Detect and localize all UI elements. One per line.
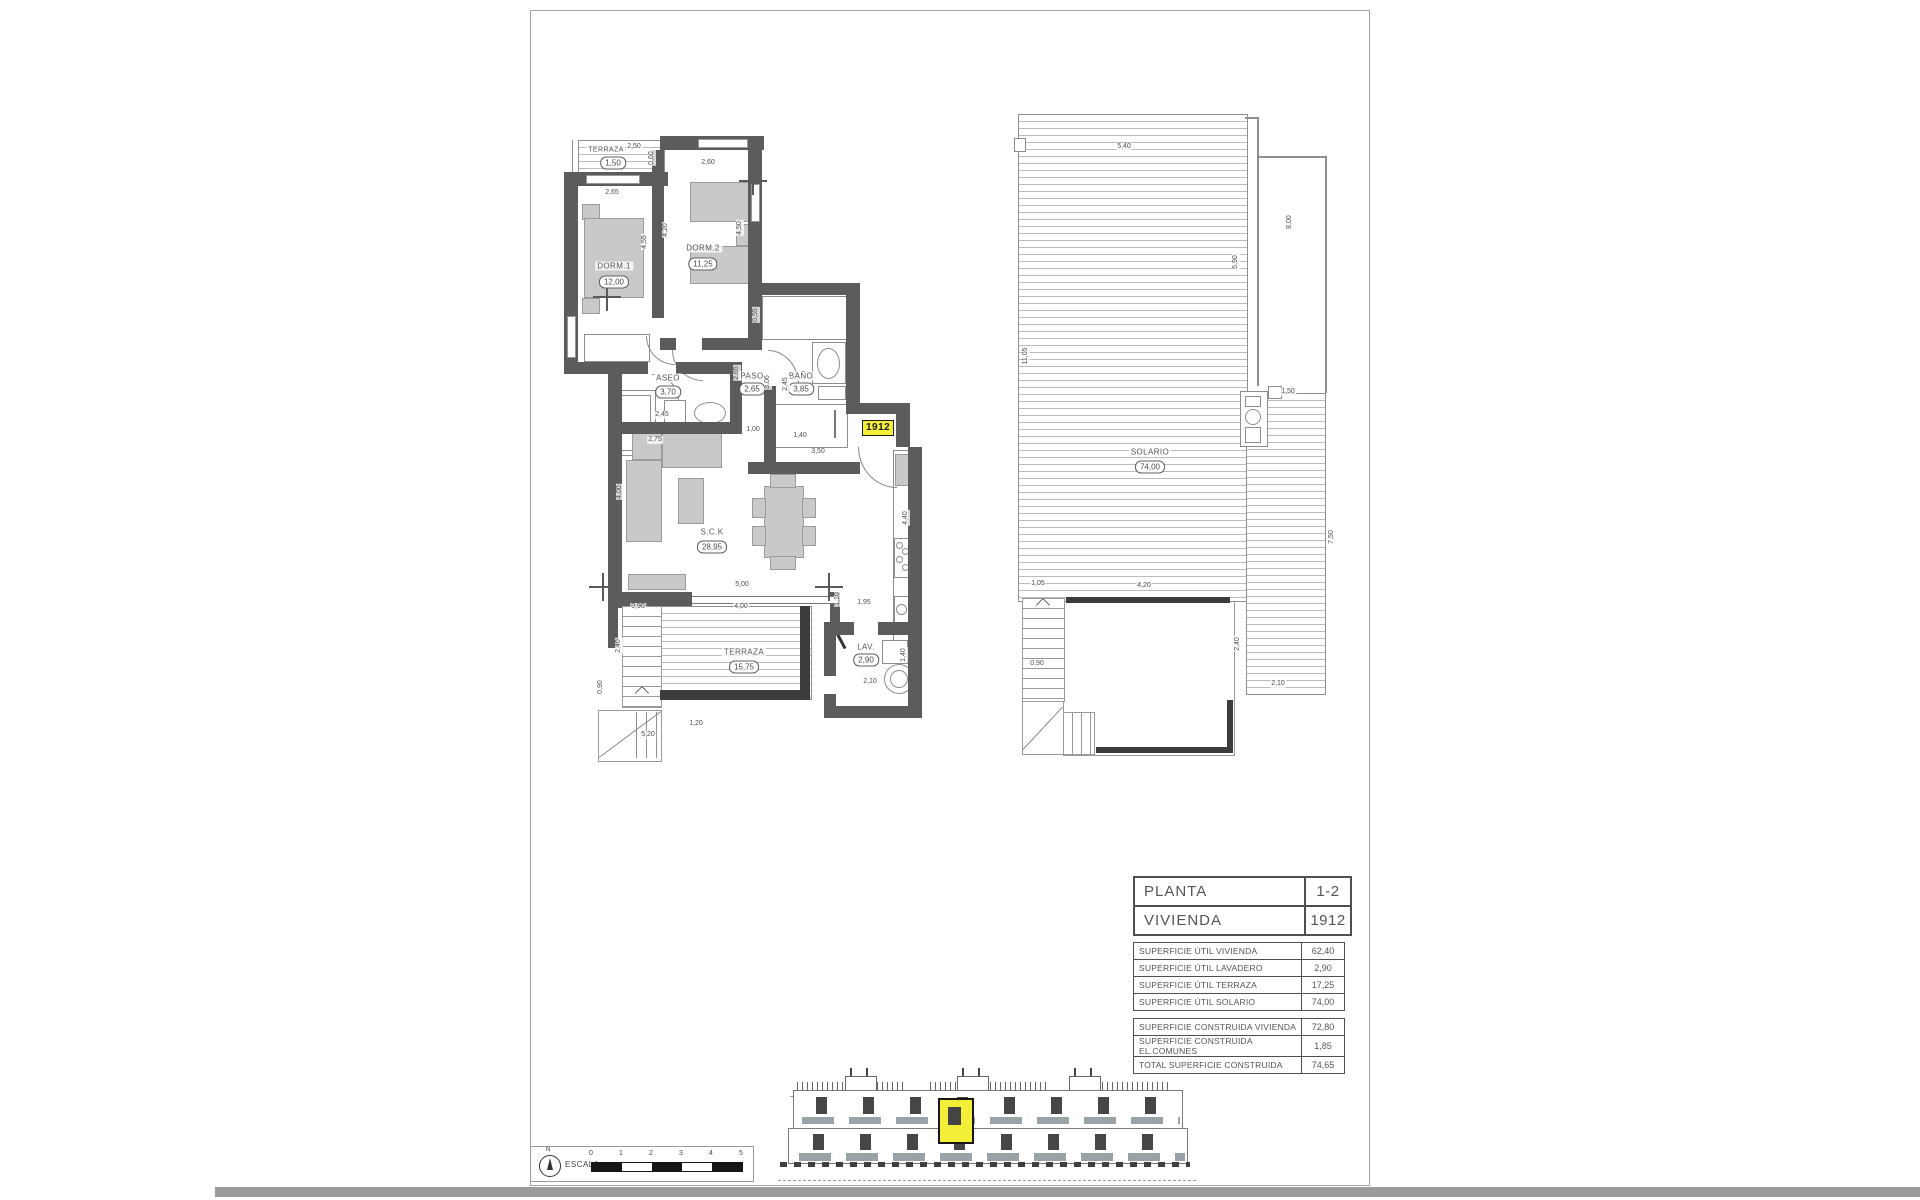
plan-sheet-page: 1912 TERRAZA 1,50 DORM.1 12,00 DORM.2 11… (0, 0, 1920, 1200)
room-label-bano: BAÑO (787, 372, 815, 381)
superficie-util-table: SUPERFICIE ÚTIL VIVIENDA62,40SUPERFICIE … (1133, 942, 1345, 1011)
table-row: SUPERFICIE ÚTIL SOLARIO74,00 (1134, 994, 1345, 1011)
scale-tick-label: 4 (709, 1150, 713, 1157)
room-label-dorm1: DORM.1 (595, 262, 633, 271)
elevation-highlighted-unit (938, 1098, 974, 1144)
superficie-construida-table: SUPERFICIE CONSTRUIDA VIVIENDA72,80SUPER… (1133, 1018, 1345, 1074)
antenna-icon (866, 1068, 868, 1076)
row-label: SUPERFICIE CONSTRUIDA EL.COMUNES (1134, 1036, 1302, 1057)
room-label-lav: LAV. (855, 643, 877, 652)
void-edge-beam (1227, 700, 1233, 753)
axis-cross (818, 576, 840, 598)
area-badge-terraza-top: 1,50 (600, 157, 626, 170)
window (567, 316, 576, 358)
room-label-paso: PASO (738, 372, 765, 381)
lower-floor-facade (788, 1128, 1188, 1164)
sink-aseo (664, 400, 686, 424)
wardrobe-dorm1 (584, 334, 650, 362)
fridge (895, 454, 909, 486)
sink-bowl (896, 604, 907, 615)
wall-segment (896, 403, 910, 447)
wall-segment (608, 362, 622, 608)
wall-segment (764, 386, 776, 464)
wall-segment (748, 136, 762, 350)
ground-line (780, 1162, 1190, 1167)
table-row: PLANTA1-2 (1134, 877, 1351, 906)
bathtub (772, 404, 848, 448)
boundary-line (1257, 156, 1327, 158)
step-line (646, 712, 647, 758)
sink-bano (817, 348, 840, 379)
room-label-dorm2: DORM.2 (684, 244, 722, 253)
scale-tick-label: 0 (589, 1150, 593, 1157)
highlighted-unit-window (948, 1107, 961, 1125)
axis-cross (596, 286, 618, 308)
solario-deck (1018, 114, 1248, 602)
terrace-railing (572, 140, 579, 176)
wall-segment (652, 150, 664, 318)
area-badge-paso: 2,65 (739, 383, 765, 396)
boundary-line (1257, 156, 1259, 386)
antenna-icon (962, 1068, 964, 1076)
toilet-aseo (694, 402, 726, 424)
row-label: TOTAL SUPERFICIE CONSTRUIDA (1134, 1057, 1302, 1074)
row-label: SUPERFICIE ÚTIL SOLARIO (1134, 994, 1302, 1011)
row-label: VIVIENDA (1134, 906, 1305, 935)
sliding-glass-door (692, 596, 838, 604)
row-label: SUPERFICIE ÚTIL LAVADERO (1134, 960, 1302, 977)
wall-segment (608, 592, 692, 606)
area-badge-bano: 3,85 (788, 383, 814, 396)
table-row: SUPERFICIE CONSTRUIDA EL.COMUNES1,85 (1134, 1036, 1345, 1057)
dining-table (764, 486, 804, 558)
wall-segment (748, 283, 860, 295)
area-badge-dorm1: 12,00 (599, 276, 629, 289)
row-label: SUPERFICIE ÚTIL VIVIENDA (1134, 943, 1302, 960)
lav-counter (882, 640, 908, 664)
row-label: SUPERFICIE CONSTRUIDA VIVIENDA (1134, 1019, 1302, 1036)
table-row: SUPERFICIE ÚTIL VIVIENDA62,40 (1134, 943, 1345, 960)
row-value: 72,80 (1302, 1019, 1345, 1036)
north-label: N (546, 1147, 550, 1153)
wall-segment (660, 338, 676, 350)
scan-edge-strip (215, 1187, 1920, 1197)
unit-number-badge: 1912 (862, 420, 894, 436)
row-value: 1912 (1305, 906, 1351, 935)
wall-segment (608, 422, 742, 434)
utility-unit (1245, 427, 1261, 443)
chair (770, 474, 796, 488)
utility-unit (1245, 396, 1261, 407)
antenna-icon (978, 1068, 980, 1076)
sofa-l (626, 460, 662, 542)
antenna-icon (1074, 1068, 1076, 1076)
planta-vivienda-table: PLANTA1-2VIVIENDA1912 (1133, 876, 1352, 936)
wall-segment (702, 338, 762, 350)
tv-sideboard (628, 574, 686, 590)
void-edge-beam (1096, 747, 1233, 753)
upper-floor-facade (793, 1090, 1183, 1130)
table-row: VIVIENDA1912 (1134, 906, 1351, 935)
wall-segment (748, 462, 860, 474)
scale-tick-label: 1 (619, 1150, 623, 1157)
coffee-table (678, 478, 704, 524)
table-row: SUPERFICIE CONSTRUIDA VIVIENDA72,80 (1134, 1019, 1345, 1036)
wall-segment (908, 447, 922, 718)
chair (752, 526, 766, 546)
antenna-icon (1090, 1068, 1092, 1076)
scale-tick-label: 5 (739, 1150, 743, 1157)
void-edge-beam (1066, 597, 1230, 603)
armchair (632, 430, 662, 460)
area-badge-sck: 28,95 (697, 541, 727, 554)
burner (896, 556, 903, 563)
row-value: 74,65 (1302, 1057, 1345, 1074)
room-label-aseo: ASEO (654, 374, 682, 383)
step-line (636, 712, 637, 758)
scale-box: N ESCALA : 012345 (530, 1146, 754, 1182)
washing-machine-drum (890, 670, 908, 688)
window (698, 139, 748, 148)
area-badge-dorm2: 11,25 (688, 258, 717, 271)
wall-segment (878, 622, 920, 635)
antenna-icon (850, 1068, 852, 1076)
scale-bar (591, 1162, 743, 1172)
row-value: 62,40 (1302, 943, 1345, 960)
axis-cross (742, 170, 764, 192)
chair (770, 556, 796, 570)
wall-segment (824, 622, 836, 676)
row-value: 1,85 (1302, 1036, 1345, 1057)
row-value: 2,90 (1302, 960, 1345, 977)
stairs-solario (1022, 598, 1065, 702)
terrace-edge (800, 606, 810, 700)
boiler-icon (1245, 409, 1261, 425)
closet (762, 296, 848, 340)
row-value: 17,25 (1302, 977, 1345, 994)
axis-cross (592, 576, 614, 598)
bathtub-tap (834, 410, 836, 438)
compass-needle (547, 1158, 553, 1170)
small-box (1268, 386, 1282, 399)
row-label: SUPERFICIE ÚTIL TERRAZA (1134, 977, 1302, 994)
boundary-line (1257, 117, 1259, 158)
boundary-line (1325, 156, 1327, 393)
row-value: 74,00 (1302, 994, 1345, 1011)
terrace-edge (660, 690, 810, 700)
wall-segment (608, 606, 618, 648)
wall-segment (608, 362, 648, 374)
area-badge-aseo: 3,70 (655, 386, 681, 399)
chair (752, 498, 766, 518)
shelf-bano (818, 386, 846, 400)
table-row: TOTAL SUPERFICIE CONSTRUIDA74,65 (1134, 1057, 1345, 1074)
sofa (662, 428, 722, 468)
burner (896, 542, 903, 549)
room-label-sck: S.C.K (699, 528, 726, 537)
building-elevation (775, 1072, 1197, 1187)
chair (802, 498, 816, 518)
north-arrow-icon: N (539, 1155, 561, 1177)
window (586, 175, 640, 184)
room-label-terraza: TERRAZA (722, 648, 766, 657)
area-badge-solario: 74,00 (1135, 461, 1165, 474)
table-row: SUPERFICIE ÚTIL LAVADERO2,90 (1134, 960, 1345, 977)
scale-tick-label: 2 (649, 1150, 653, 1157)
dashed-guide-line (778, 1180, 1196, 1181)
step-line (656, 712, 657, 758)
roof-post (1014, 138, 1026, 152)
room-label-terraza-top: TERRAZA (586, 147, 625, 154)
room-label-solario: SOLARIO (1129, 448, 1171, 457)
stairs-solario-lower (1063, 712, 1095, 755)
wall-segment (824, 706, 922, 718)
chair (802, 526, 816, 546)
wall-segment (846, 283, 860, 413)
area-badge-terraza: 15,75 (729, 661, 759, 674)
table-row: SUPERFICIE ÚTIL TERRAZA17,25 (1134, 977, 1345, 994)
scale-tick-label: 3 (679, 1150, 683, 1157)
area-badge-lav: 2,90 (853, 654, 879, 667)
row-value: 1-2 (1305, 877, 1351, 906)
row-label: PLANTA (1134, 877, 1305, 906)
